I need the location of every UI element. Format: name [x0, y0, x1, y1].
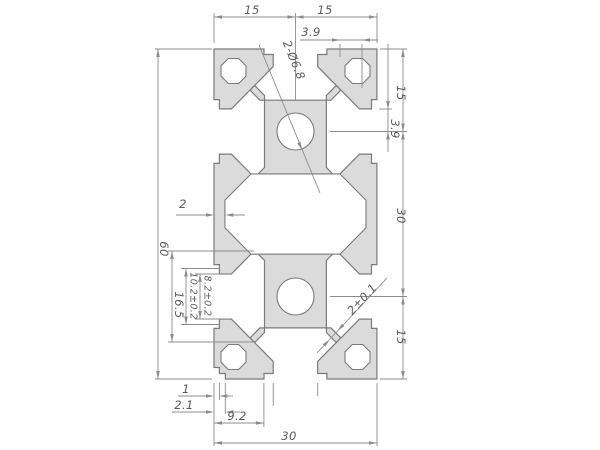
- dim-label-bottom-1: 1: [182, 382, 190, 396]
- core-hole-bottom: [277, 278, 314, 315]
- dim-label-right-3-9: 3.9: [388, 119, 402, 139]
- dim-label-bottom-9-2: 9.2: [227, 409, 247, 423]
- dim-label-left-60: 60: [157, 241, 171, 256]
- dim-label-slot-10-2: 10.2±0.2: [188, 272, 199, 319]
- corner-hole-bottom-right: [345, 345, 370, 370]
- corner-hole-bottom-left: [221, 345, 246, 370]
- dim-label-slot-8-2: 8.2±0.2: [202, 276, 213, 317]
- dim-label-top-3-9: 3.9: [301, 25, 321, 39]
- dim-label-top-left-15: 15: [244, 3, 259, 17]
- technical-drawing-canvas: 15 15 3.9 15 3.9 30 15 60 2 16.5 10.2±0.…: [0, 0, 600, 450]
- dim-label-right-bottom-15: 15: [394, 329, 408, 344]
- dim-label-right-30: 30: [394, 208, 408, 223]
- dim-label-right-top-15: 15: [394, 85, 408, 100]
- central-cavity: [225, 174, 366, 254]
- dim-label-bottom-30: 30: [281, 429, 296, 443]
- dim-label-slot-16-5: 16.5: [172, 291, 186, 318]
- core-hole-top: [277, 113, 314, 150]
- dim-label-top-right-15: 15: [317, 3, 332, 17]
- corner-hole-top-left: [221, 59, 246, 84]
- dim-label-wall-2: 2: [179, 197, 187, 211]
- dim-label-bottom-2-1: 2.1: [174, 398, 194, 412]
- corner-hole-top-right: [345, 59, 370, 84]
